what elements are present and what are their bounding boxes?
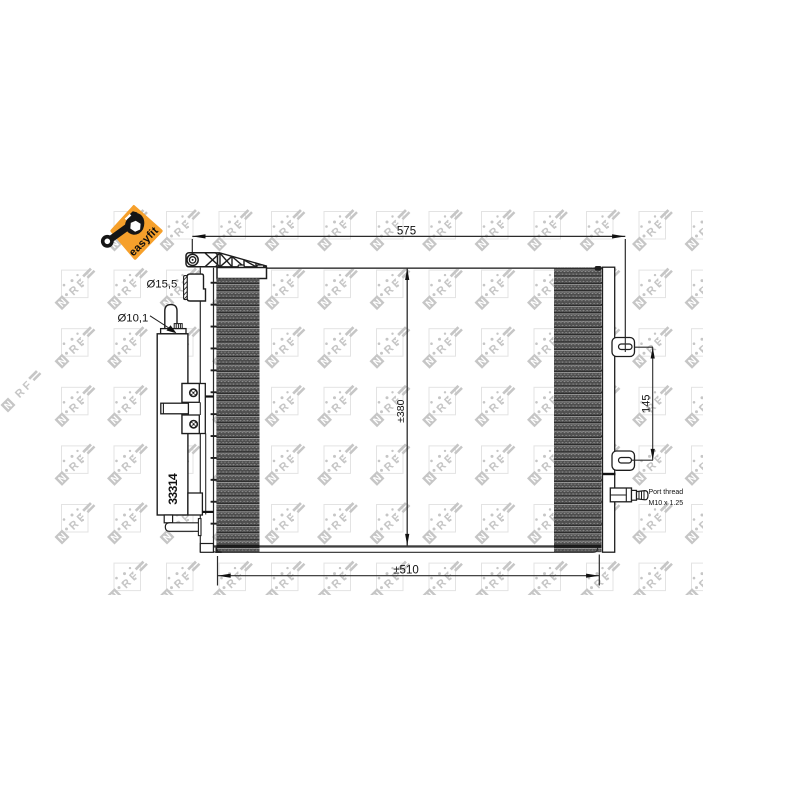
svg-text:Port thread: Port thread (649, 489, 684, 496)
svg-text:145: 145 (641, 395, 653, 413)
svg-text:575: 575 (397, 225, 416, 237)
svg-text:Ø10,1: Ø10,1 (118, 312, 149, 324)
svg-text:±380: ±380 (395, 399, 407, 422)
svg-text:Ø15,5: Ø15,5 (147, 278, 178, 290)
svg-text:M10 x 1.25: M10 x 1.25 (649, 500, 684, 507)
svg-text:±510: ±510 (393, 564, 419, 576)
svg-text:33314: 33314 (166, 473, 180, 505)
